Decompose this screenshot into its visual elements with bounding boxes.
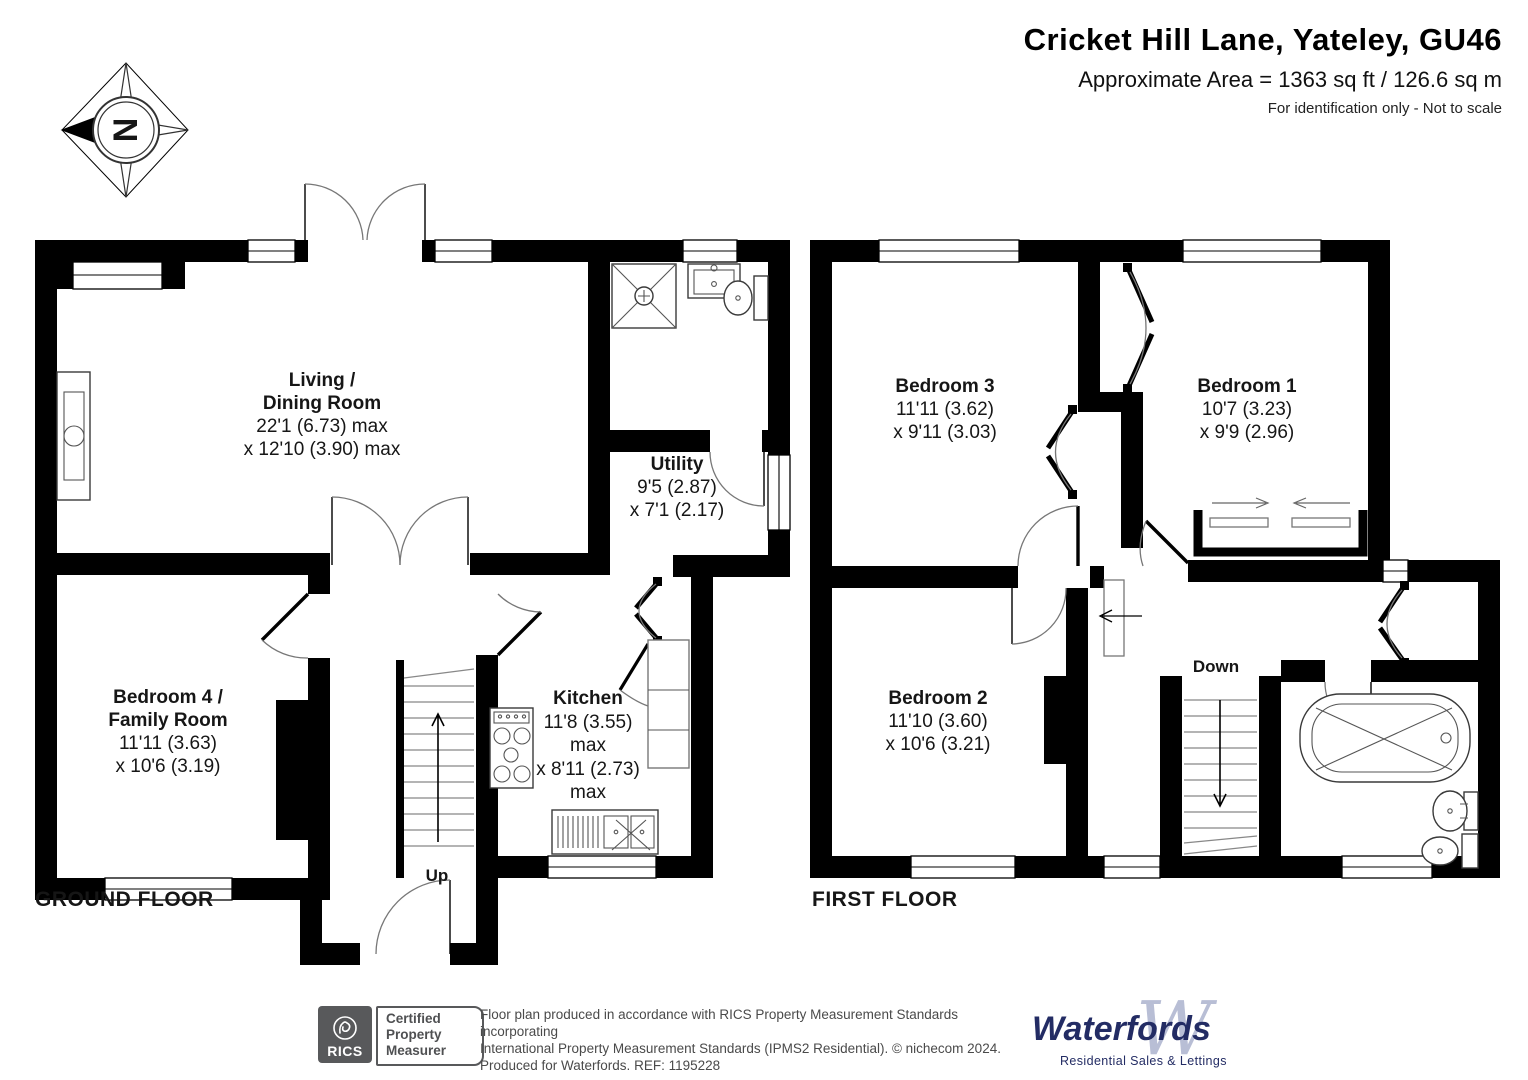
header: Cricket Hill Lane, Yateley, GU46 Approxi… bbox=[600, 22, 1502, 117]
fireplace bbox=[57, 372, 90, 500]
bedroom2-dim-1: 11'10 (3.60) bbox=[888, 711, 987, 732]
bedroom2-label: Bedroom 2 bbox=[888, 688, 987, 709]
kitchen-dim-1: 11'8 (3.55) bbox=[544, 712, 633, 733]
cert-line-2: Property bbox=[386, 1027, 482, 1043]
utility-label: Utility bbox=[651, 454, 704, 475]
ground-stairs bbox=[404, 669, 474, 846]
bedroom2-dim-2: x 10'6 (3.21) bbox=[885, 734, 990, 755]
bedroom4-label: Bedroom 4 / bbox=[113, 687, 224, 708]
kitchen-dim-3: x 8'11 (2.73) bbox=[536, 759, 640, 780]
kitchen-label: Kitchen bbox=[553, 688, 623, 709]
certified-property-measurer-badge: Certified Property Measurer bbox=[376, 1006, 484, 1066]
utility-dim-2: x 7'1 (2.17) bbox=[630, 500, 724, 521]
ground-floor-title: GROUND FLOOR bbox=[35, 888, 214, 911]
compass-north-label: N bbox=[107, 118, 145, 143]
kitchen-sink-icon bbox=[552, 810, 658, 854]
utility-dim-1: 9'5 (2.87) bbox=[637, 477, 717, 498]
approximate-area: Approximate Area = 1363 sq ft / 126.6 sq… bbox=[600, 67, 1502, 93]
hob-icon bbox=[490, 708, 533, 788]
kitchen-counter bbox=[648, 640, 689, 768]
bedroom1-dim-2: x 9'9 (2.96) bbox=[1200, 422, 1294, 443]
bedroom4-dim-2: x 10'6 (3.19) bbox=[115, 756, 220, 777]
bedroom3-dim-2: x 9'11 (3.03) bbox=[893, 422, 997, 443]
bathroom-sink-icon bbox=[1433, 791, 1478, 831]
scale-note: For identification only - Not to scale bbox=[600, 100, 1502, 117]
living-room-dim-1: 22'1 (6.73) max bbox=[256, 416, 388, 437]
kitchen-dim-4: max bbox=[570, 782, 606, 803]
rics-brand-text: RICS bbox=[327, 1043, 362, 1059]
rics-lion-icon bbox=[330, 1013, 360, 1043]
bedroom1-dim-1: 10'7 (3.23) bbox=[1202, 399, 1292, 420]
first-floor-title: FIRST FLOOR bbox=[812, 888, 958, 911]
bedroom4-label-2: Family Room bbox=[108, 710, 227, 731]
waterfords-tagline: Residential Sales & Lettings bbox=[1060, 1054, 1227, 1068]
ground-walls bbox=[35, 240, 790, 965]
first-stairs bbox=[1184, 700, 1257, 854]
bedroom3-label: Bedroom 3 bbox=[895, 376, 994, 397]
stairs-down-label: Down bbox=[1193, 657, 1239, 676]
page-title: Cricket Hill Lane, Yateley, GU46 bbox=[600, 22, 1502, 58]
cert-line-1: Certified bbox=[386, 1011, 482, 1027]
disclaimer-line-2: International Property Measurement Stand… bbox=[480, 1040, 1025, 1057]
disclaimer-line-3: Produced for Waterfords. REF: 1195228 bbox=[480, 1057, 1025, 1074]
living-room-dim-2: x 12'10 (3.90) max bbox=[244, 439, 401, 460]
first-floor-plan: Bedroom 3 11'11 (3.62) x 9'11 (3.03) Bed… bbox=[805, 230, 1515, 930]
stairs-up-label: Up bbox=[426, 866, 449, 885]
floorplan-page: Cricket Hill Lane, Yateley, GU46 Approxi… bbox=[0, 0, 1528, 1080]
disclaimer: Floor plan produced in accordance with R… bbox=[480, 1006, 1025, 1074]
bathroom-toilet-icon bbox=[1422, 834, 1478, 868]
kitchen-dim-2: max bbox=[570, 735, 606, 756]
bath-icon bbox=[1300, 694, 1470, 782]
disclaimer-line-1: Floor plan produced in accordance with R… bbox=[480, 1006, 1025, 1040]
waterfords-name: Waterfords bbox=[1032, 1010, 1211, 1049]
ground-floor-plan: Living / Dining Room 22'1 (6.73) max x 1… bbox=[30, 180, 790, 980]
bedroom1-label: Bedroom 1 bbox=[1197, 376, 1297, 397]
living-room-label: Living / bbox=[289, 370, 356, 391]
cert-line-3: Measurer bbox=[386, 1043, 482, 1059]
waterfords-logo: W Waterfords Residential Sales & Letting… bbox=[1030, 1000, 1510, 1074]
bedroom4-dim-1: 11'11 (3.63) bbox=[119, 733, 217, 754]
shower-icon bbox=[612, 264, 676, 328]
rics-logo: RICS bbox=[318, 1006, 372, 1063]
wardrobe bbox=[1198, 498, 1363, 552]
living-room-label-2: Dining Room bbox=[263, 393, 381, 414]
bedroom3-dim-1: 11'11 (3.62) bbox=[896, 399, 994, 420]
